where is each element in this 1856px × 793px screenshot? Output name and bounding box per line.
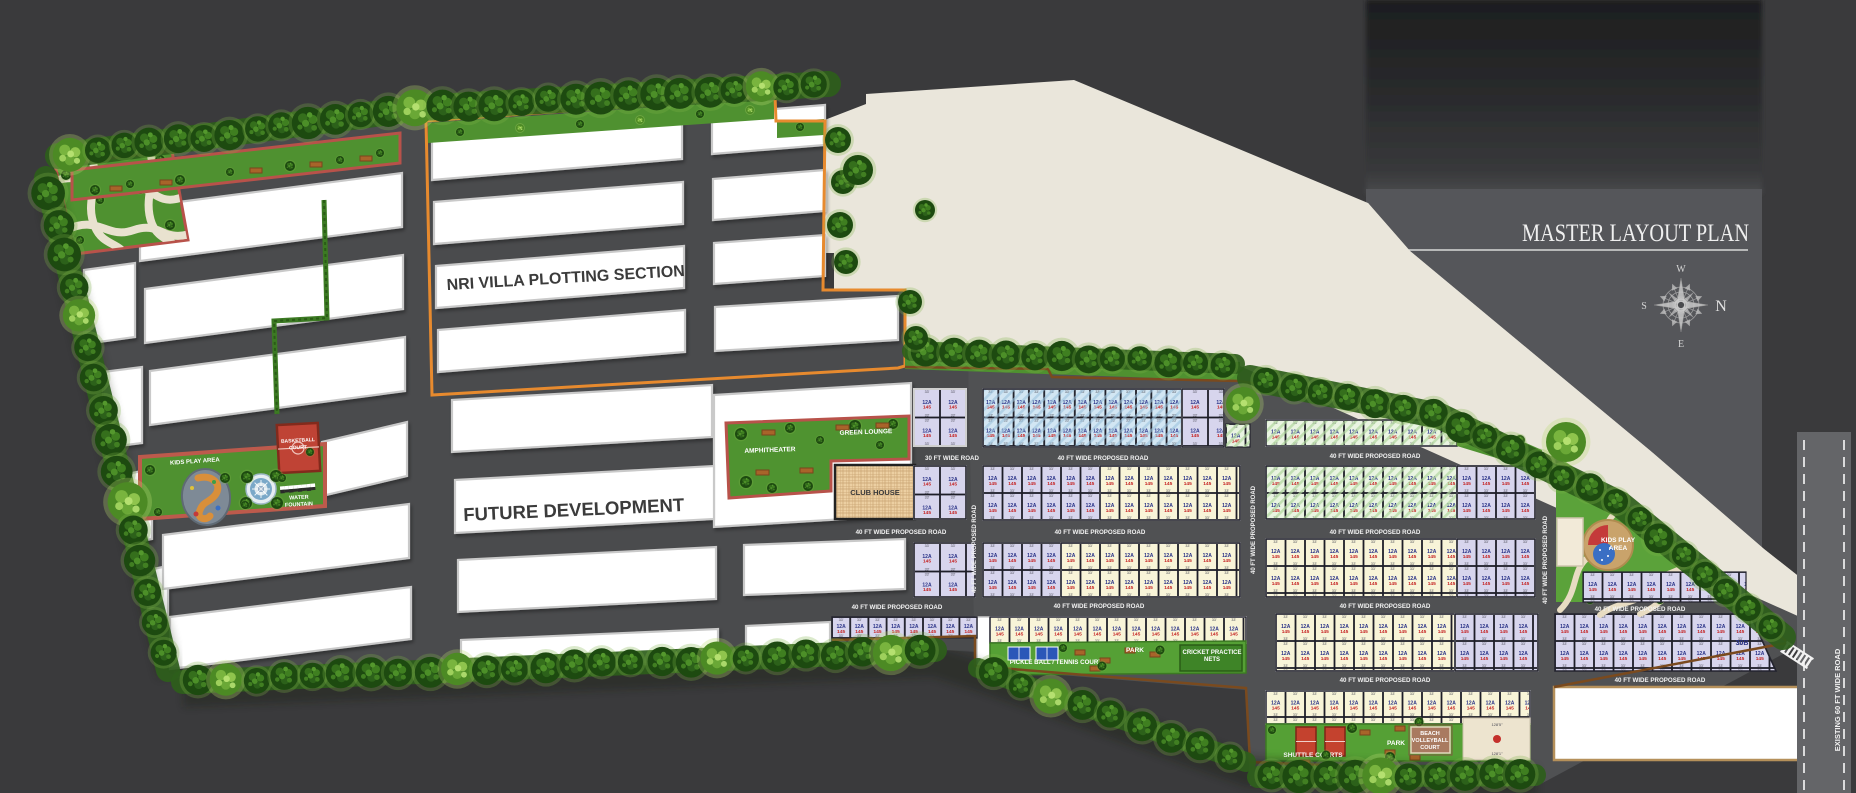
svg-text:COURT: COURT — [1420, 745, 1440, 751]
svg-text:40 FT WIDE PROPOSED ROAD: 40 FT WIDE PROPOSED ROAD — [1058, 455, 1149, 462]
svg-text:N: N — [1715, 298, 1727, 315]
svg-text:40 FT WIDE PROPOSED ROAD: 40 FT WIDE PROPOSED ROAD — [1054, 603, 1145, 610]
svg-text:128'5": 128'5" — [1491, 722, 1503, 727]
svg-text:40 FT WIDE PROPOSED ROAD: 40 FT WIDE PROPOSED ROAD — [856, 529, 947, 536]
svg-text:30B: 30B — [1736, 640, 1749, 647]
svg-text:VOLLEYBALL: VOLLEYBALL — [1412, 738, 1449, 744]
svg-text:40 FT WIDE PROPOSED ROAD: 40 FT WIDE PROPOSED ROAD — [1340, 603, 1431, 610]
svg-text:S: S — [1641, 301, 1647, 312]
svg-text:CRICKET PRACTICE: CRICKET PRACTICE — [1182, 650, 1241, 656]
svg-text:40 FT WIDE PROPOSED ROAD: 40 FT WIDE PROPOSED ROAD — [1615, 677, 1706, 684]
svg-text:40 FT WIDE PROPOSED ROAD: 40 FT WIDE PROPOSED ROAD — [972, 504, 978, 593]
svg-text:AREA: AREA — [1609, 545, 1628, 552]
svg-text:MASTER LAYOUT PLAN: MASTER LAYOUT PLAN — [1522, 220, 1749, 247]
svg-text:40 FT WIDE PROPOSED ROAD: 40 FT WIDE PROPOSED ROAD — [1595, 606, 1686, 613]
svg-text:NETS: NETS — [1204, 657, 1220, 663]
svg-text:BEACH: BEACH — [1420, 731, 1440, 737]
svg-text:40 FT WIDE PROPOSED ROAD: 40 FT WIDE PROPOSED ROAD — [1330, 529, 1421, 536]
svg-text:E: E — [1678, 339, 1684, 350]
svg-text:PICKLE BALL / TENNIS COURTS: PICKLE BALL / TENNIS COURTS — [1010, 659, 1106, 666]
svg-text:W: W — [1676, 264, 1686, 275]
svg-text:40 FT WIDE PROPOSED ROAD: 40 FT WIDE PROPOSED ROAD — [1330, 453, 1421, 460]
svg-text:40 FT WIDE PROPOSED ROAD: 40 FT WIDE PROPOSED ROAD — [1543, 515, 1549, 604]
svg-text:40 FT WIDE PROPOSED ROAD: 40 FT WIDE PROPOSED ROAD — [852, 604, 943, 611]
svg-text:PARK: PARK — [1387, 740, 1405, 747]
svg-text:KIDS PLAY: KIDS PLAY — [1601, 537, 1636, 544]
svg-text:30 FT WIDE ROAD: 30 FT WIDE ROAD — [925, 455, 980, 462]
svg-text:40 FT WIDE PROPOSED ROAD: 40 FT WIDE PROPOSED ROAD — [1055, 529, 1146, 536]
svg-text:40 FT WIDE PROPOSED ROAD: 40 FT WIDE PROPOSED ROAD — [1340, 677, 1431, 684]
svg-text:40 FT WIDE PROPOSED ROAD: 40 FT WIDE PROPOSED ROAD — [1251, 485, 1257, 574]
svg-text:WATER: WATER — [289, 494, 309, 501]
svg-text:PARK: PARK — [1126, 647, 1144, 654]
svg-text:CLUB HOUSE: CLUB HOUSE — [850, 488, 900, 497]
svg-text:EXISTING 60 FT WIDE ROAD: EXISTING 60 FT WIDE ROAD — [1833, 648, 1842, 751]
svg-text:COURT: COURT — [289, 445, 307, 452]
